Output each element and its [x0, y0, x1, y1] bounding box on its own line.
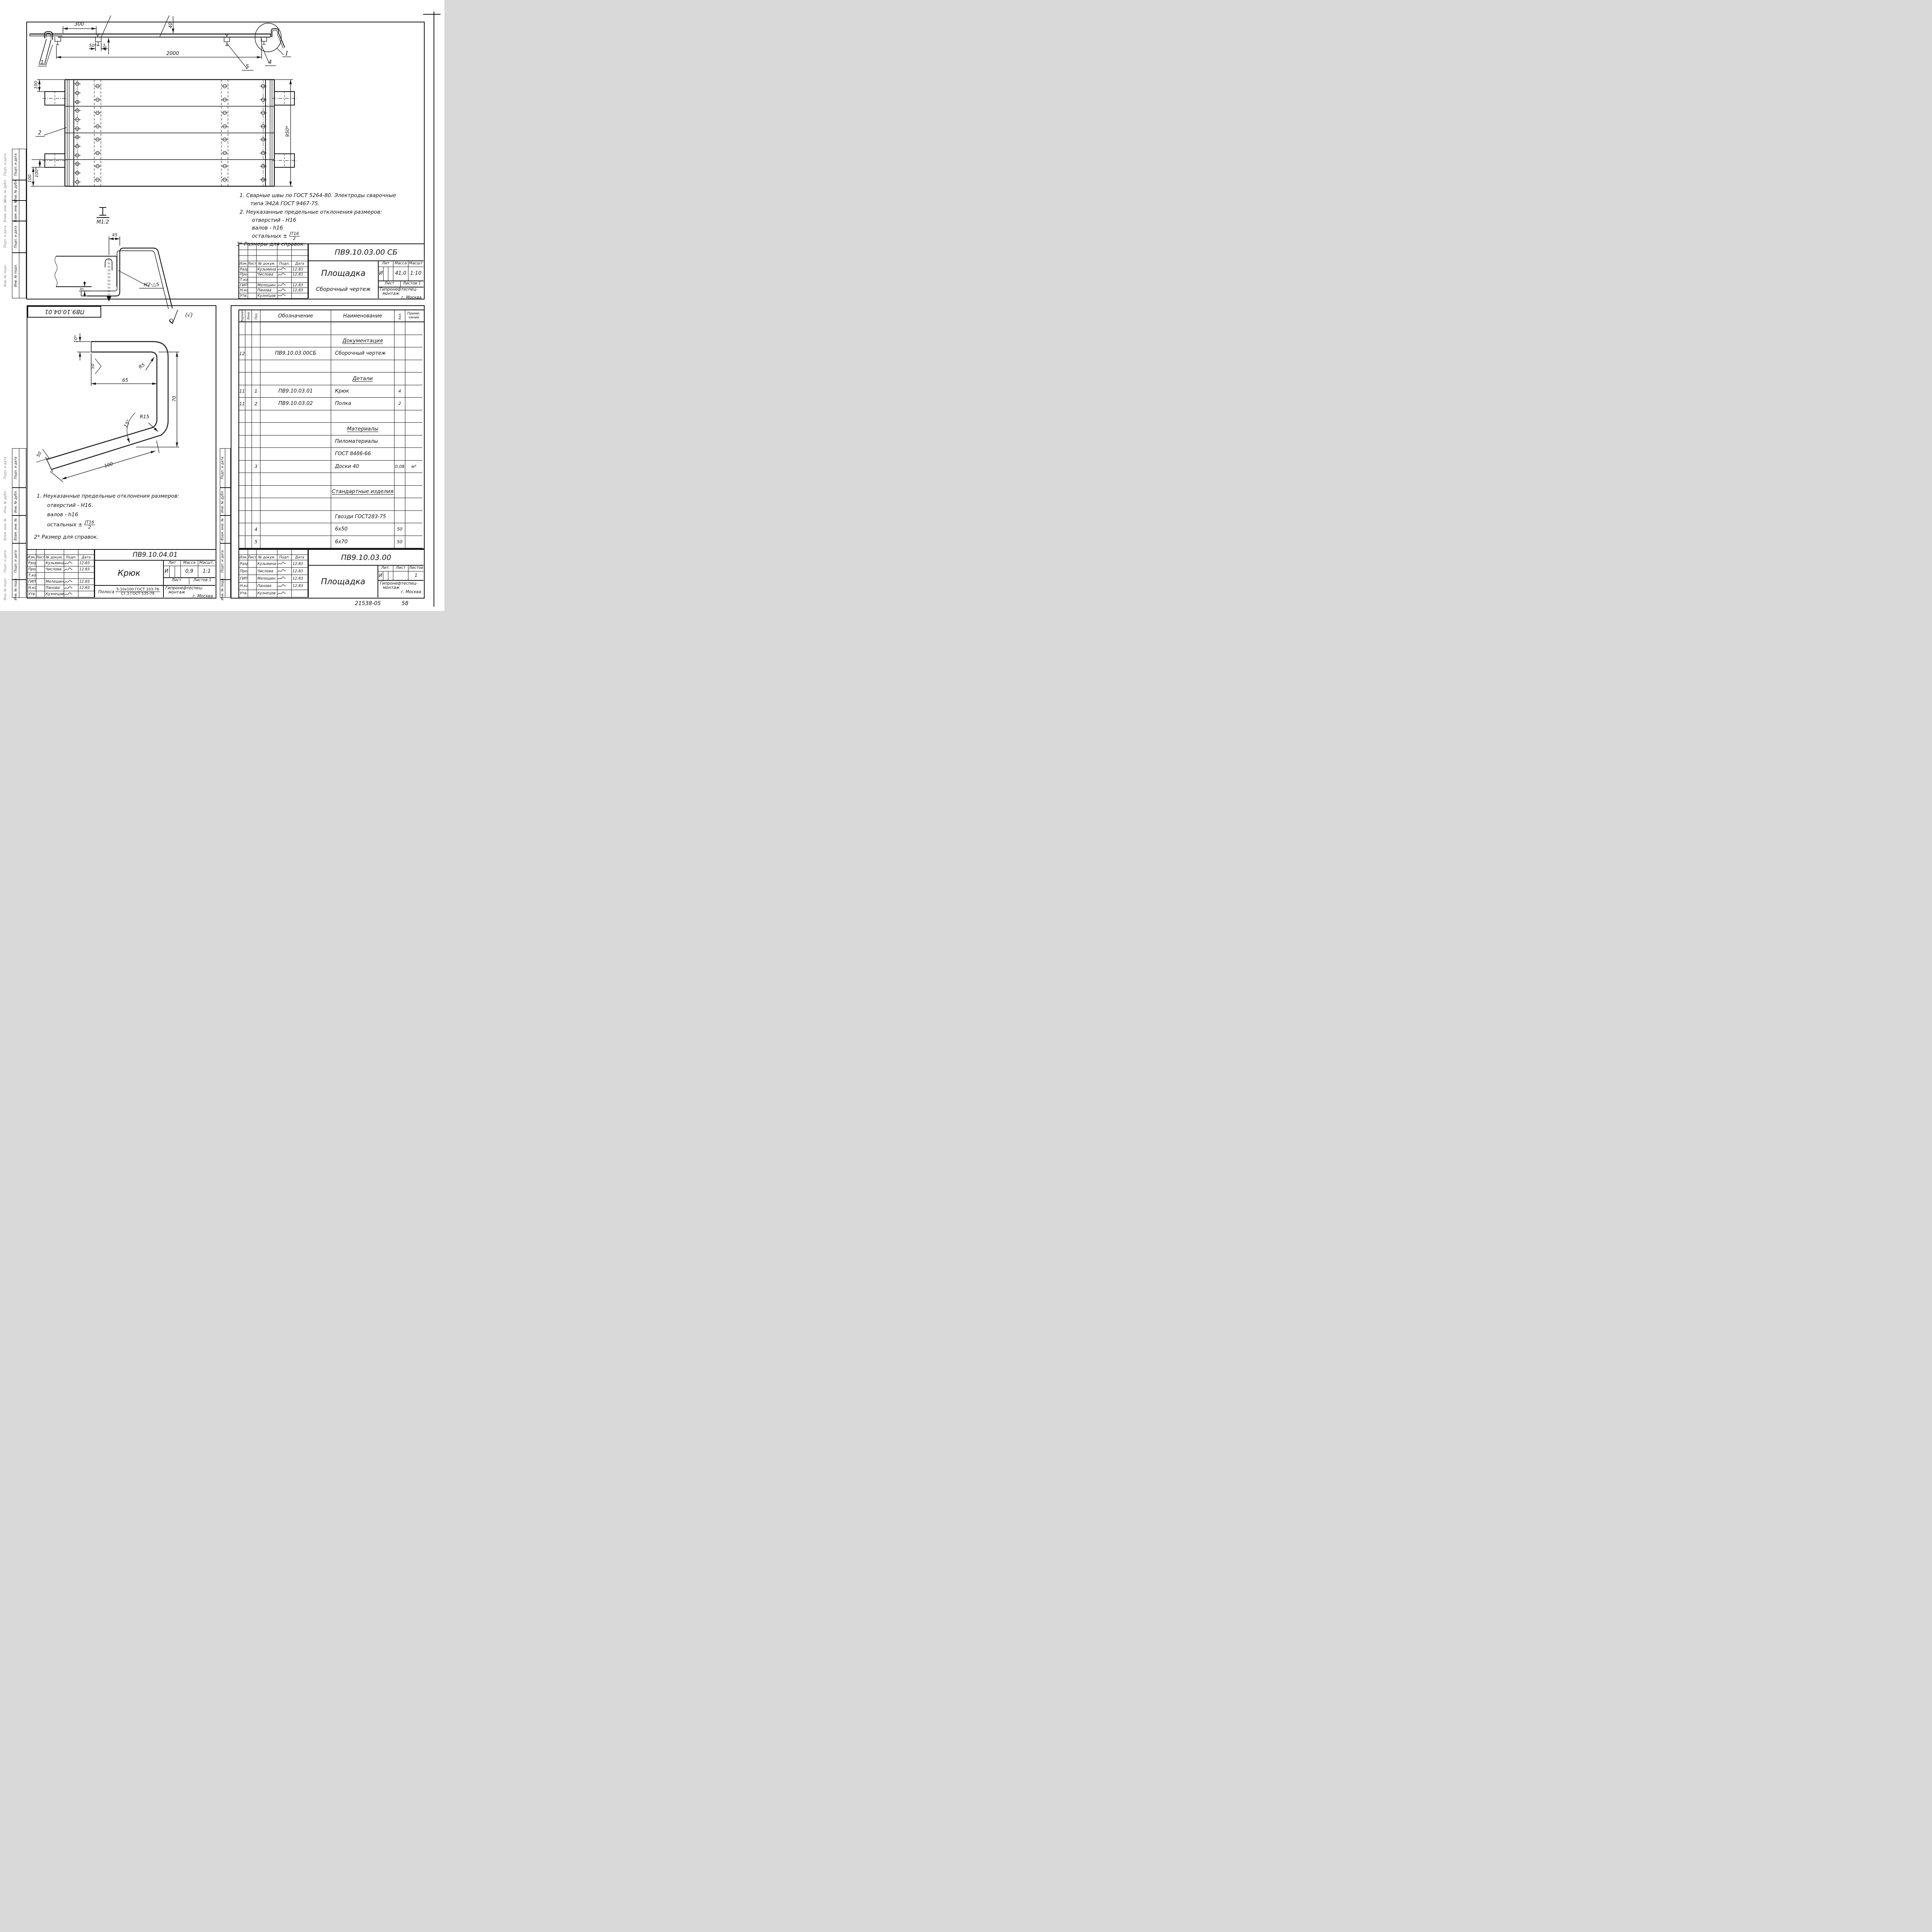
org-cell: Гипронефтеспец- монтаж г. Москва — [379, 287, 423, 298]
spec-cell: 4 — [395, 385, 405, 398]
stamp-column-empty-cell — [19, 448, 26, 488]
sheet2-right-area: Лит Масса Масшт. И 0,9 1:1 Лист Листов 1 — [163, 561, 215, 585]
stamp-column-empty-cell — [19, 580, 26, 598]
spec-item-value: м³ — [412, 464, 417, 469]
title-block-cell — [277, 256, 292, 261]
sheet2-title-block: Изм.Лист№ докум.Подп.ДатаРазраб.Кузьмина… — [27, 549, 216, 599]
stamp-column-label-faint: Взам. инв. № — [3, 200, 7, 222]
spec-item-value: 4 — [255, 527, 257, 532]
spec-cell — [252, 423, 260, 435]
spec-cell: м³ — [405, 461, 422, 473]
title-block-row: Утв.Кузнецов — [27, 591, 94, 597]
title-block-cell: Н.контр — [239, 583, 248, 590]
spec-item-value: 2 — [255, 401, 257, 406]
person-role: Утв. — [239, 294, 248, 298]
spec-cell — [239, 511, 245, 524]
title-block-row: ГИПМелешин12.83 — [27, 579, 94, 585]
spec-header-label: Обозначение — [278, 313, 313, 319]
rotated-doc-stamp-box: ПВ9.10.04.01 — [27, 306, 101, 318]
person-role: Т.контр. — [239, 278, 248, 282]
sheet1-title-cell: Площадка Сборочный чертеж — [308, 261, 378, 298]
spec-cell — [405, 486, 422, 498]
stamp-column-empty-cell — [19, 180, 26, 201]
stamp-column-label: Подп. и дата — [14, 153, 18, 176]
spec-cell — [405, 385, 422, 398]
title-block-row: Пров.Числова12.83 — [239, 568, 308, 575]
spec-cell: Сборочный чертеж — [331, 347, 395, 360]
stamp-column-label-faint: Инв. № подл. — [3, 577, 7, 600]
spec-cell — [245, 498, 252, 511]
spec-cell — [405, 473, 422, 486]
spec-cell — [252, 360, 260, 373]
spec-cell: 6х50 — [331, 523, 395, 536]
stamp-column-label-cell: Подп. и дата — [220, 448, 225, 488]
note-line: отверстий - Н16 — [252, 217, 296, 223]
stamp-column-label: Инв. № дубл. — [14, 179, 18, 201]
title-block-row: Изм.Лист№ докум.Подп.Дата — [239, 555, 308, 560]
signature — [277, 592, 286, 595]
title-block-cell — [248, 575, 257, 582]
person-name: Панова — [45, 586, 60, 590]
title-block-cell: Дата — [292, 555, 308, 560]
stamp-column-label-faint: Подп. и дата — [3, 550, 7, 573]
person-name: Кузьмина — [257, 267, 276, 272]
title-block-cell: 12.83 — [78, 566, 94, 573]
stamp-column-label: Инв. № подл. — [14, 264, 18, 287]
title-block-header-label: Лист — [36, 556, 45, 560]
roughness-general: (√) — [185, 312, 193, 318]
title-block-cell: Дата — [292, 261, 308, 267]
spec-cell — [260, 410, 331, 423]
signature — [277, 562, 286, 566]
title-block-cell: Мелешин — [257, 283, 277, 288]
spec-item-value: 11 — [239, 388, 245, 394]
person-name: Мелешин — [257, 577, 276, 581]
title-block-cell: Утв. — [239, 590, 248, 597]
title-block-cell — [78, 550, 94, 555]
title-block-cell — [248, 244, 257, 250]
hook-dim-65: 65 — [122, 378, 128, 383]
spec-item-name: ГОСТ 8486-66 — [331, 451, 371, 457]
spec-item-name: Сборочный чертеж — [331, 350, 386, 356]
title-block-cell: Лист — [248, 555, 257, 560]
title-block-cell — [64, 579, 78, 585]
lit-cell: И — [379, 267, 393, 281]
title-block-cell — [277, 277, 292, 283]
title-block-header-label: Изм. — [239, 262, 247, 266]
person-name: Кузьмина — [257, 562, 276, 566]
spec-row: 56х7050 — [239, 536, 424, 549]
signature — [64, 561, 73, 565]
spec-cell — [252, 322, 260, 335]
spec-header-label: Кол. — [398, 312, 401, 319]
spec-header-cell: Обозначение — [260, 310, 331, 321]
spec-cell — [252, 473, 260, 486]
spec-cell: 2 — [252, 398, 260, 410]
title-block-cell: Панова — [45, 585, 64, 591]
title-block-cell — [277, 583, 292, 590]
section-dim-5: 5 — [80, 288, 85, 291]
person-role: Разраб. — [239, 562, 248, 566]
spec-cell — [239, 523, 245, 536]
person-role: Утв. — [239, 591, 248, 595]
rotated-doc-number: ПВ9.10.04.01 — [44, 308, 84, 315]
stamp-column-label: Подп. и дата — [14, 226, 18, 248]
spec-header-cell: Формат — [239, 310, 245, 321]
spec-cell: 3 — [252, 461, 260, 473]
stamp-column-label-cell: Подп. и дата — [12, 221, 19, 253]
spec-cell: Доски 40 — [331, 461, 395, 473]
stamp-column-empty-cell — [19, 488, 26, 515]
sheet3-title-cell: Площадка — [308, 566, 378, 597]
title-block-row: Разраб.Кузьмина12.83 — [27, 560, 94, 566]
title-block-cell: ГИП — [27, 579, 36, 585]
title-block-cell — [248, 267, 257, 272]
title-block-cell — [248, 288, 257, 293]
scale-value: 1:10 — [408, 267, 423, 281]
spec-cell — [245, 410, 252, 423]
stamp-column-label: Подп. и дата — [14, 550, 18, 573]
title-block-cell — [277, 575, 292, 582]
title-block-cell: 12.83 — [292, 288, 308, 293]
title-block-cell — [78, 591, 94, 597]
spec-row: 112ПВ9.10.03.02Полка2 — [239, 398, 424, 410]
sheet2-doc-number: ПВ9.10.04.01 — [133, 551, 177, 559]
title-block-cell: 12.83 — [292, 283, 308, 288]
title-block-cell — [64, 560, 78, 566]
material-prefix: Полоса — [98, 589, 114, 594]
spec-header-label: Поз. — [254, 313, 258, 320]
stamp-column-label-cell: Подп. и дата — [12, 448, 19, 488]
person-name: Числова — [257, 272, 273, 277]
title-block-cell: Подп. — [64, 555, 78, 560]
stamp-column-empty-cell — [19, 149, 26, 180]
spec-item-name: Гвозди ГОСТ283-75 — [331, 514, 386, 520]
spec-cell — [260, 486, 331, 498]
lit-cell: И — [378, 571, 393, 580]
signature — [277, 569, 286, 573]
spec-cell — [405, 423, 422, 435]
title-block-cell: № докум. — [45, 555, 64, 560]
title-block-cell: Изм. — [27, 555, 36, 560]
spec-item-name: 6х70 — [331, 539, 348, 545]
spec-row: Стандартные изделия — [239, 486, 424, 498]
spec-cell — [245, 347, 252, 360]
title-block-cell: Лист — [36, 555, 45, 560]
title-block-cell: Мелешин — [45, 579, 64, 585]
title-block-cell: Подп. — [277, 555, 292, 560]
spec-cell — [405, 360, 422, 373]
title-block-cell: Мелешин — [257, 575, 277, 582]
sheet3-personnel-table: Изм.Лист№ докум.Подп.ДатаРазраб.Кузьмина… — [239, 550, 308, 597]
spec-item-name: Полка — [331, 401, 351, 406]
stamp-column-label-cell: Взам. инв. № — [220, 515, 225, 543]
spec-header-label: Наименование — [343, 313, 382, 319]
person-date: 12.83 — [292, 569, 303, 573]
title-block-cell — [78, 573, 94, 579]
title-block-row: Изм.Лист№ докум.Подп.Дата — [27, 555, 94, 560]
title-block-cell: № докум. — [257, 555, 277, 560]
title-block-cell — [292, 590, 308, 597]
spec-cell — [245, 523, 252, 536]
title-block-cell — [257, 550, 277, 555]
stamp-column-label: Инв. № подл. — [14, 577, 18, 600]
title-block-cell — [248, 277, 257, 283]
spec-cell — [260, 511, 331, 524]
hook-dim-R15: R15 — [140, 414, 150, 420]
spec-cell: 50 — [395, 536, 405, 549]
person-date: 12.83 — [292, 577, 303, 581]
spec-item-value: 50 — [397, 527, 403, 532]
sheet1-doc-cell: ПВ9.10.03.00 СБ — [308, 244, 423, 261]
org-line1: Гипронефтеспец- — [379, 287, 423, 292]
signature — [277, 584, 286, 588]
title-block-cell — [277, 288, 292, 293]
spec-item-value: 4 — [398, 389, 401, 394]
spec-cell: Крюк — [331, 385, 395, 398]
spec-cell — [260, 423, 331, 435]
spec-cell — [260, 372, 331, 385]
person-role: Н.контр. — [27, 586, 36, 590]
stamp-column-label-cell: Инв. № дубл. — [12, 488, 19, 515]
spec-cell: ГОСТ 8486-66 — [331, 448, 395, 461]
title-block-cell — [292, 256, 308, 261]
plan-dim-100-top: 100 — [34, 81, 39, 89]
spec-header-cell: Кол. — [395, 310, 405, 321]
lit-value: И — [164, 566, 169, 577]
hook-dim-50-top: 50 — [90, 364, 95, 369]
title-block-cell: № докум. — [257, 261, 277, 267]
title-block-header-label: Подп. — [279, 262, 289, 266]
spec-cell — [395, 435, 405, 448]
lit-label: Лит. — [378, 566, 393, 571]
person-role: Разраб. — [27, 561, 36, 565]
title-block-cell — [64, 585, 78, 591]
spec-row: 46х5050 — [239, 523, 424, 536]
balloon-5: 5 — [246, 64, 249, 70]
spec-cell — [245, 435, 252, 448]
person-role: ГИП — [27, 580, 36, 584]
spec-cell — [405, 498, 422, 511]
spec-item-ref: ПВ9.10.03.02 — [279, 401, 313, 406]
signature — [64, 568, 73, 571]
spec-cell — [245, 423, 252, 435]
spec-cell — [331, 410, 395, 423]
org-line1: Гипронефтеспец- — [164, 586, 215, 590]
spec-cell — [245, 448, 252, 461]
spec-header-cell: Зона — [245, 310, 252, 321]
sheet2-title-cell: Крюк — [94, 561, 163, 585]
title-block-cell — [277, 244, 292, 250]
note-line: 1. Сварные швы по ГОСТ 5264-80. Электрод… — [240, 192, 396, 199]
spec-cell — [245, 385, 252, 398]
spec-cell — [239, 423, 245, 435]
plan-dim-100-bottom: 100 — [27, 175, 32, 183]
title-block-cell: Лист — [248, 261, 257, 267]
spec-cell — [395, 372, 405, 385]
title-block-row: Утв.Кузнецов — [239, 293, 308, 299]
title-block-header-label: Подп. — [66, 556, 76, 560]
spec-cell: Гвозди ГОСТ283-75 — [331, 511, 395, 524]
spec-row — [239, 498, 424, 511]
stamp-column-label: Подп. и дата — [14, 457, 18, 479]
title-block-cell — [248, 250, 257, 256]
title-block-cell — [64, 573, 78, 579]
sheet-label: Лист — [393, 566, 409, 571]
title-block-cell — [248, 550, 257, 555]
title-block-cell: 12.83 — [78, 560, 94, 566]
title-block-cell — [45, 550, 64, 555]
title-block-cell: Дата — [78, 555, 94, 560]
title-block-header-label: Дата — [295, 556, 304, 560]
sheets-value: 1 — [408, 571, 423, 580]
spec-cell — [252, 486, 260, 498]
stamp-column-label: Взам. инв. № — [14, 518, 18, 541]
spec-cell — [260, 435, 331, 448]
title-block-cell — [248, 293, 257, 299]
sheet3-right-area: Лит. Лист Листов И 1 Гипронефтеспец- мон… — [378, 566, 423, 597]
spec-row: 12ПВ9.10.03.00СБСборочный чертеж — [239, 347, 424, 360]
person-date: 12.83 — [292, 283, 303, 287]
person-name: Кузнецов — [257, 591, 276, 595]
title-block-cell — [36, 585, 45, 591]
spec-cell: 5 — [252, 536, 260, 549]
mass-label: Масса — [393, 261, 408, 267]
sheet3-doc-cell: ПВ9.10.03.00 — [308, 550, 423, 566]
title-block-row: Н.контр.Панова12.83 — [239, 288, 308, 293]
stamp-column-label-faint: Взам. инв. № — [3, 518, 7, 541]
title-block-cell: Утв. — [239, 293, 248, 299]
stamp-column-label: Взам. инв. № — [221, 518, 224, 541]
title-block-cell: Пров. — [239, 568, 248, 575]
spec-item-ref: ПВ9.10.03.00СБ — [275, 350, 316, 356]
title-block-cell: 12.83 — [78, 585, 94, 591]
spec-cell — [395, 473, 405, 486]
title-block-cell: Т.контр. — [27, 573, 36, 579]
title-block-cell: ГИП — [239, 575, 248, 582]
spec-cell — [252, 372, 260, 385]
stamp-column-label-faint: Инв. № дубл. — [3, 179, 7, 201]
stamp-column-label-cell: Подп. и дата — [12, 543, 19, 580]
spec-cell: 6х70 — [331, 536, 395, 549]
spec-cell — [260, 335, 331, 348]
sheet3-doc-number: ПВ9.10.03.00 — [341, 553, 391, 562]
spec-cell — [395, 347, 405, 360]
spec-header-label: Зона — [247, 312, 250, 320]
title-block-row: Н.контрПанова12.83 — [239, 583, 308, 590]
title-block-cell — [277, 550, 292, 555]
title-block-cell — [248, 256, 257, 261]
lit-value: И — [378, 571, 383, 580]
title-block-cell — [36, 550, 45, 555]
material-fraction: 5-10х100 ГОСТ 103-76Ст.3 ГОСТ 535-79 — [116, 588, 160, 596]
title-block-cell: Разраб. — [27, 560, 36, 566]
title-block-cell — [36, 579, 45, 585]
spec-item-ref: ПВ9.10.03.01 — [279, 388, 313, 394]
specification-table: ФорматЗонаПоз.ОбозначениеНаименованиеКол… — [238, 310, 425, 549]
org-line3: г. Москва — [378, 590, 423, 594]
spec-cell — [239, 498, 245, 511]
spec-cell — [239, 335, 245, 348]
stamp-column-label-faint: Инв. № подл. — [3, 264, 7, 287]
title-block-row: Пров.Числова12.83 — [27, 566, 94, 573]
stamp-column-empty-cell — [225, 448, 231, 488]
section-scale: М1:2 — [97, 219, 109, 225]
spec-cell — [245, 398, 252, 410]
note-line: типа Э42А ГОСТ 9467-75. — [250, 201, 320, 207]
title-block-row — [27, 550, 94, 555]
hook-dim-10: 10* — [73, 335, 78, 343]
note-line: 1. Неуказанные предельные отклонения раз… — [37, 493, 179, 499]
spec-cell — [405, 335, 422, 348]
person-date: 12.83 — [78, 561, 90, 565]
spec-cell — [239, 461, 245, 473]
spec-cell: ПВ9.10.03.00СБ — [260, 347, 331, 360]
spec-row: Пиломатериалы — [239, 435, 424, 448]
title-block-cell — [257, 256, 277, 261]
sheet1-doc-type: Сборочный чертеж — [316, 286, 371, 293]
spec-cell — [239, 410, 245, 423]
spec-cell: 11 — [239, 385, 245, 398]
section-dim-45: 45 — [112, 233, 117, 238]
spec-item-name: Доски 40 — [331, 464, 359, 469]
spec-cell — [245, 335, 252, 348]
spec-cell — [239, 372, 245, 385]
title-block-header-label: Подп. — [279, 556, 289, 560]
title-block-row: Т.контр. — [239, 277, 308, 283]
org-line3: г. Москва — [379, 296, 423, 300]
person-date: 12.83 — [292, 267, 303, 272]
spec-cell: 50 — [395, 523, 405, 536]
sheet1-product-name: Площадка — [321, 269, 366, 278]
spec-header-label: чание — [408, 316, 419, 320]
scan-edge-line — [434, 12, 434, 607]
spec-cell — [260, 322, 331, 335]
title-block-row — [239, 244, 308, 250]
detail-callout-I: I — [286, 50, 288, 57]
spec-cell — [252, 498, 260, 511]
title-block-cell — [292, 250, 308, 256]
spec-row — [239, 360, 424, 373]
spec-cell: 1 — [252, 385, 260, 398]
stamp-column-label-cell: Взам. инв. № — [12, 515, 19, 543]
dim-50-star: 50* — [89, 43, 97, 48]
plan-dim-950: 950* — [285, 126, 290, 137]
note-line-tolerance: остальных ± JT162 — [47, 520, 95, 529]
stamp-column-label-cell: Инв. № подл. — [12, 253, 19, 298]
title-block-cell — [239, 256, 248, 261]
stamp-column-empty-cell — [19, 253, 26, 298]
spec-section-title: Детали — [352, 376, 372, 382]
title-block-cell — [292, 244, 308, 250]
title-block-cell — [277, 568, 292, 575]
spec-cell — [252, 448, 260, 461]
spec-cell — [260, 473, 331, 486]
dim-300: 300 — [75, 22, 84, 27]
signature — [64, 592, 73, 596]
spec-cell — [245, 461, 252, 473]
title-block-cell — [64, 566, 78, 573]
signature — [64, 586, 73, 590]
spec-header-row: ФорматЗонаПоз.ОбозначениеНаименованиеКол… — [239, 310, 424, 322]
mass-value: 0,9 — [181, 566, 198, 577]
sheets-label: Листов 1 — [189, 578, 215, 584]
stamp-column-empty-cell — [19, 515, 26, 543]
stamp-column-label-cell: Инв. № подл. — [12, 580, 19, 598]
note-line-tolerance: остальных ± JT162 — [252, 231, 300, 241]
spec-cell — [331, 322, 395, 335]
person-name: Кузнецов — [257, 294, 276, 298]
